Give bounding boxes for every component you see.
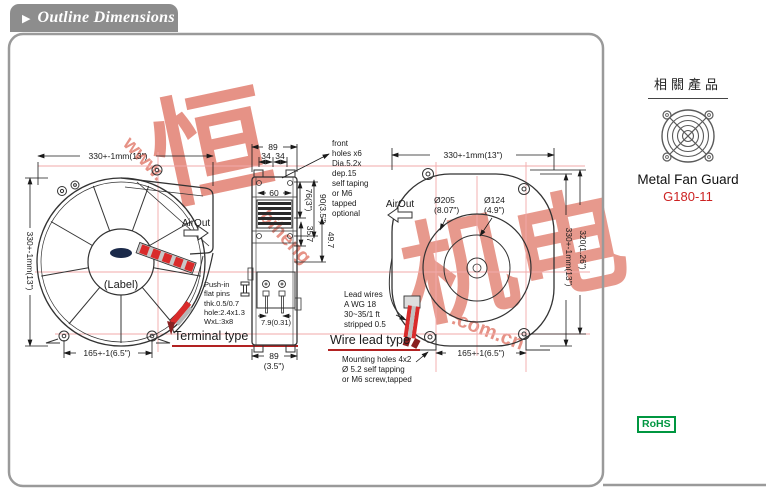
side-dim-76: 76(3")	[304, 189, 314, 212]
hub-logo	[110, 248, 132, 258]
holes-line1: front	[332, 139, 349, 148]
back-dim-d124: Ø124	[484, 195, 505, 205]
side-dim-497: 49.7	[326, 232, 336, 249]
rohs-badge: RoHS	[637, 416, 676, 433]
section-title: Outline Dimensions	[37, 9, 174, 27]
mounting-holes-note: Mounting holes 4x2 Ø 5.2 self tapping or…	[342, 355, 412, 384]
front-airout-label: AirOut	[182, 218, 211, 229]
front-holes-note: front holes x6 Dia.5.2x dep.15 self tapi…	[332, 139, 368, 218]
holes-line7: tapped	[332, 199, 356, 208]
front-view	[37, 165, 213, 346]
back-airout-label: AirOut	[386, 199, 415, 210]
back-dim-hole-span: 165+-1(6.5")	[457, 348, 504, 358]
side-dim-depth: 89	[269, 351, 279, 361]
lead-line4: stripped 0.5	[344, 320, 386, 329]
side-dim-vent: 60	[269, 188, 279, 198]
terminal-strip	[136, 242, 196, 335]
metal-fan-guard-image	[612, 107, 764, 170]
lead-line1: Lead wires	[344, 290, 383, 299]
wire-lead-type-caption: Wire lead type	[330, 333, 410, 347]
header-bullet-icon: ▶	[22, 12, 30, 25]
pin-icon	[241, 282, 249, 296]
pushin-line4: hole:2.4x1.3	[204, 308, 245, 317]
back-dim-width: 330+-1mm(13")	[444, 150, 503, 160]
fan-guard-icon	[659, 107, 717, 165]
back-dim-d205-in: (8.07")	[434, 205, 459, 215]
product-model: G180-11	[612, 189, 764, 204]
product-name: Metal Fan Guard	[612, 172, 764, 187]
terminal-type-caption: Terminal type	[174, 329, 248, 343]
related-products-panel: 相關產品 Metal Fan Guard G180-11	[612, 74, 764, 204]
pushin-line2: flat pins	[204, 289, 230, 298]
back-dim-d124-in: (4.9")	[484, 205, 505, 215]
holes-line2: holes x6	[332, 149, 362, 158]
mount-line2: Ø 5.2 self tapping	[342, 365, 405, 374]
pushin-note: Push-in flat pins thk.0.5/0.7 hole:2.4x1…	[204, 280, 249, 326]
mount-line1: Mounting holes 4x2	[342, 355, 412, 364]
holes-line4: dep.15	[332, 169, 357, 178]
lead-wires-note: Lead wires A WG 18 30~35/1 ft stripped 0…	[344, 290, 386, 329]
lead-line3: 30~35/1 ft	[344, 310, 381, 319]
back-view-dims	[392, 148, 586, 362]
pushin-line5: WxL:3x8	[204, 317, 233, 326]
back-dim-d205: Ø205	[434, 195, 455, 205]
pushin-line1: Push-in	[204, 280, 229, 289]
back-dim-height: 330+-1mm(13")	[564, 228, 574, 287]
section-header-tab: ▶ Outline Dimensions	[10, 4, 178, 32]
side-dim-90: 90(3.5")	[318, 194, 328, 224]
side-dim-357: 35.7	[305, 226, 315, 243]
front-dim-hole-span: 165+-1(6.5")	[83, 348, 130, 358]
holes-line6: or M6	[332, 189, 353, 198]
fan-center-label: (Label)	[104, 279, 138, 291]
lead-line2: A WG 18	[344, 300, 377, 309]
mount-line3: or M6 screw,tapped	[342, 375, 412, 384]
side-dim-half-a: 34	[261, 151, 271, 161]
airout-left-arrow-icon	[388, 208, 412, 222]
holes-line3: Dia.5.2x	[332, 159, 361, 168]
front-dim-width: 330+-1mm(13")	[89, 151, 148, 161]
vent-grille	[258, 202, 291, 225]
front-dim-height: 330+-1mm(13")	[25, 232, 35, 291]
back-dim-320: 320(1.26")	[578, 230, 588, 270]
side-dim-pin: 7.9(0.31)	[261, 318, 292, 327]
side-dim-depth-in: (3.5")	[264, 361, 285, 371]
holes-line5: self taping	[332, 179, 368, 188]
related-products-title: 相關產品	[648, 74, 728, 99]
side-dim-half-b: 34	[275, 151, 285, 161]
pushin-line3: thk.0.5/0.7	[204, 299, 239, 308]
page: 恒 机电 www. biheng .com.cn	[0, 0, 768, 497]
holes-line8: optional	[332, 209, 360, 218]
